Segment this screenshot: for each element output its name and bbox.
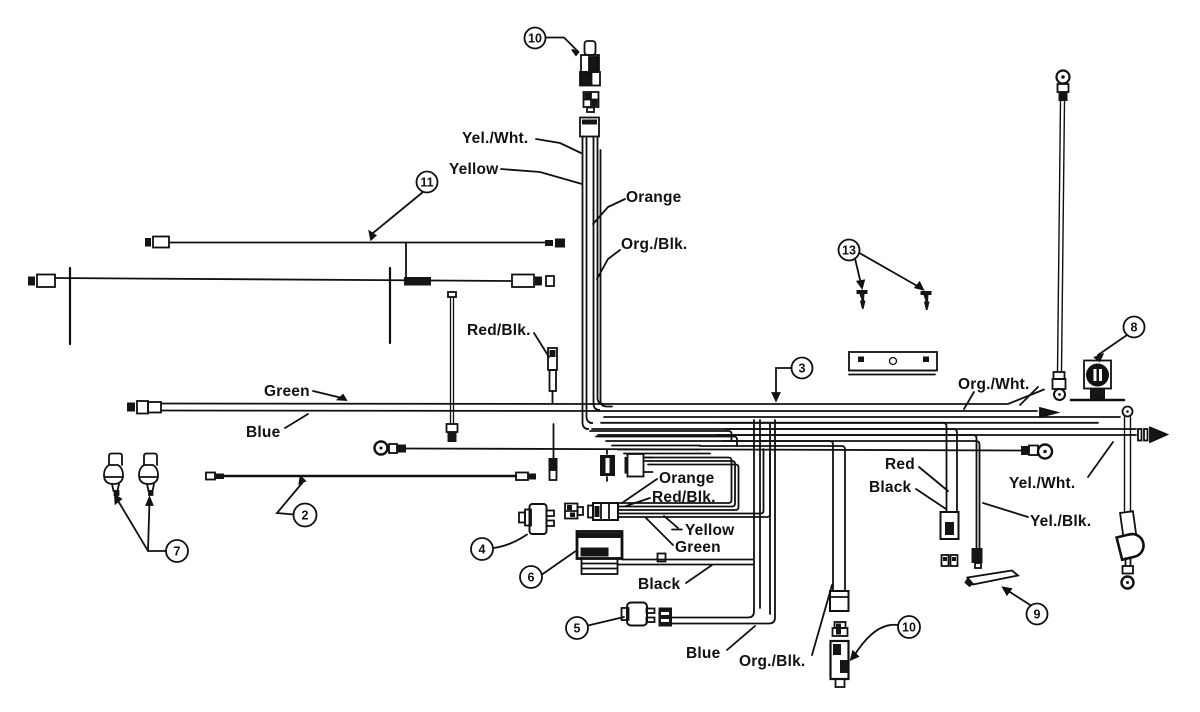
svg-text:6: 6 (528, 571, 535, 585)
svg-text:Org./Blk.: Org./Blk. (621, 236, 687, 253)
svg-text:Red: Red (885, 456, 915, 473)
svg-text:Black: Black (869, 479, 912, 496)
svg-text:Yel./Wht.: Yel./Wht. (1009, 475, 1075, 492)
svg-text:Orange: Orange (659, 470, 715, 487)
svg-text:Blue: Blue (246, 424, 281, 441)
svg-text:Green: Green (675, 539, 721, 556)
svg-text:9: 9 (1034, 608, 1041, 622)
svg-text:3: 3 (799, 362, 806, 376)
svg-text:Red/Blk.: Red/Blk. (652, 489, 716, 506)
svg-text:Blue: Blue (686, 645, 721, 662)
svg-text:Yel./Wht.: Yel./Wht. (462, 130, 528, 147)
svg-text:2: 2 (302, 509, 309, 523)
svg-text:Yel./Blk.: Yel./Blk. (1030, 513, 1091, 530)
svg-text:8: 8 (1131, 321, 1138, 335)
svg-text:Green: Green (264, 383, 310, 400)
svg-text:13: 13 (842, 244, 856, 258)
svg-text:Yellow: Yellow (449, 161, 499, 178)
svg-text:5: 5 (574, 622, 581, 636)
svg-text:10: 10 (902, 621, 916, 635)
svg-text:Yellow: Yellow (685, 522, 735, 539)
svg-text:4: 4 (479, 543, 486, 557)
svg-text:11: 11 (420, 176, 433, 190)
svg-text:10: 10 (528, 32, 542, 46)
svg-text:Red/Blk.: Red/Blk. (467, 322, 531, 339)
svg-text:Black: Black (638, 576, 681, 593)
svg-text:Org./Blk.: Org./Blk. (739, 653, 805, 670)
svg-text:Org./Wht.: Org./Wht. (958, 376, 1030, 393)
svg-text:Orange: Orange (626, 189, 682, 206)
svg-text:7: 7 (174, 545, 181, 559)
